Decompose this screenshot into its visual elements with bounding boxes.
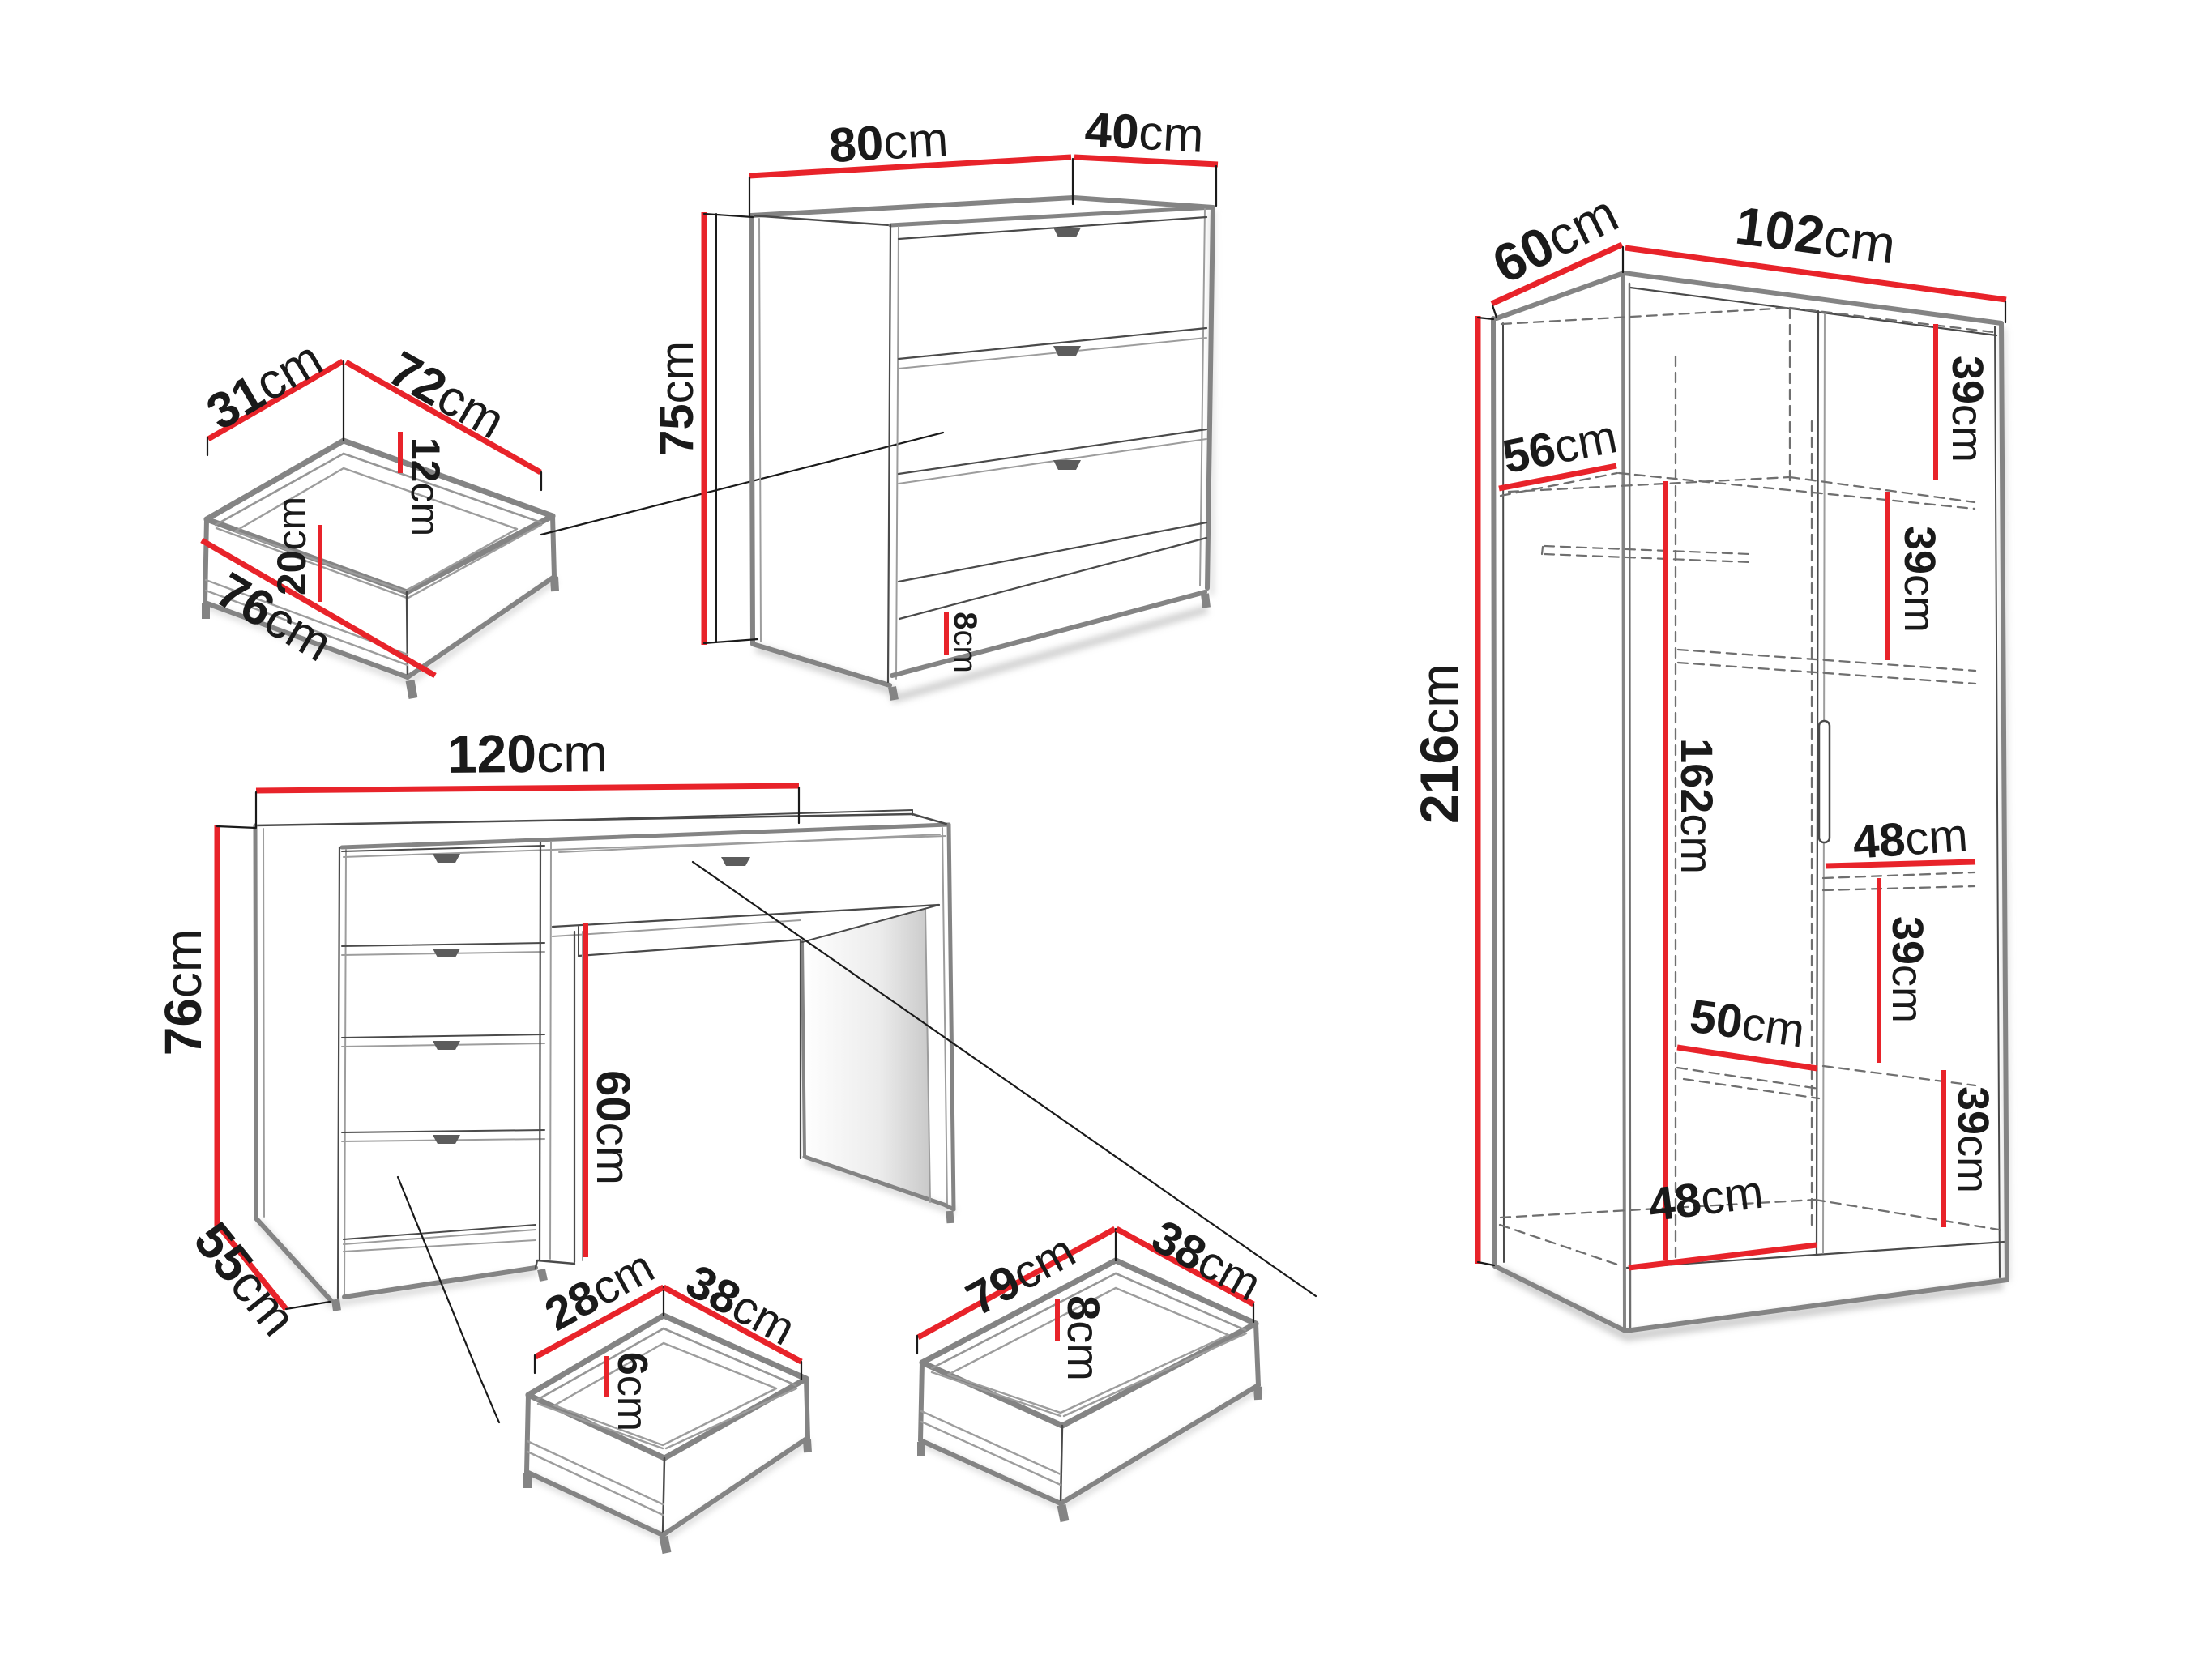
svg-text:48cm: 48cm [1851, 808, 1970, 869]
svg-text:6cm: 6cm [609, 1352, 655, 1431]
svg-text:60cm: 60cm [587, 1070, 639, 1185]
svg-text:75cm: 75cm [651, 341, 703, 456]
svg-text:39cm: 39cm [1895, 526, 1944, 633]
svg-text:80cm: 80cm [828, 112, 950, 173]
svg-text:162cm: 162cm [1672, 738, 1723, 874]
svg-text:76cm: 76cm [154, 929, 212, 1056]
svg-text:12cm: 12cm [403, 437, 448, 536]
svg-text:8cm: 8cm [947, 612, 983, 673]
svg-text:120cm: 120cm [447, 723, 609, 785]
svg-text:20cm: 20cm [269, 497, 314, 595]
svg-text:39cm: 39cm [1883, 916, 1932, 1023]
svg-text:40cm: 40cm [1083, 102, 1205, 163]
svg-text:216cm: 216cm [1409, 663, 1469, 824]
svg-text:39cm: 39cm [1949, 1086, 1997, 1193]
svg-text:39cm: 39cm [1943, 356, 1992, 463]
svg-text:8cm: 8cm [1058, 1295, 1109, 1381]
